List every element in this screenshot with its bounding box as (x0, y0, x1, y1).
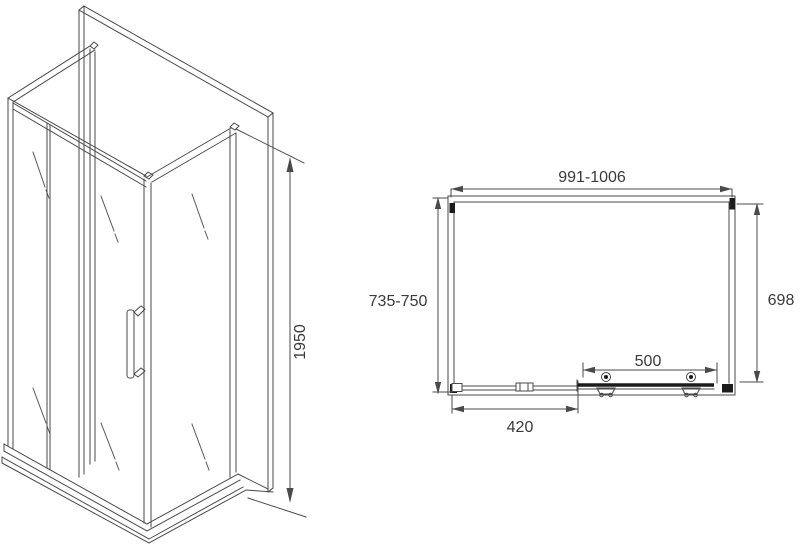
back-panel (79, 6, 273, 492)
shower-enclosure-drawing: 1950 (0, 0, 800, 546)
door-handle (127, 306, 145, 378)
right-wall-profile-top (730, 198, 736, 210)
base-tray (2, 444, 273, 543)
door-dimension: 500 (583, 353, 717, 383)
left-wall-profile-top (450, 203, 456, 213)
door-end-bracket (722, 384, 733, 393)
depth-left-dimension-label: 735-750 (369, 293, 428, 310)
door-dimension-label: 500 (635, 353, 662, 370)
width-dimension-label: 991-1006 (558, 169, 626, 186)
depth-left-dimension: 735-750 (369, 197, 452, 394)
sliding-door (577, 373, 733, 397)
front-door-assembly (8, 98, 153, 527)
fixed-panel-rail (452, 381, 578, 392)
side-view: 1950 (2, 6, 309, 543)
technical-drawing-canvas: 1950 (0, 0, 800, 546)
depth-right-dimension-label: 698 (768, 292, 795, 309)
plan-view: 991-1006 735-750 698 500 (369, 169, 795, 436)
depth-right-dimension: 698 (737, 203, 794, 383)
right-side-panel (147, 123, 239, 477)
height-dimension-label: 1950 (292, 324, 309, 360)
plan-outline (448, 196, 735, 395)
panel-dimension-label: 420 (507, 419, 534, 436)
panel-dimension: 420 (452, 393, 578, 436)
width-dimension: 991-1006 (451, 169, 732, 197)
